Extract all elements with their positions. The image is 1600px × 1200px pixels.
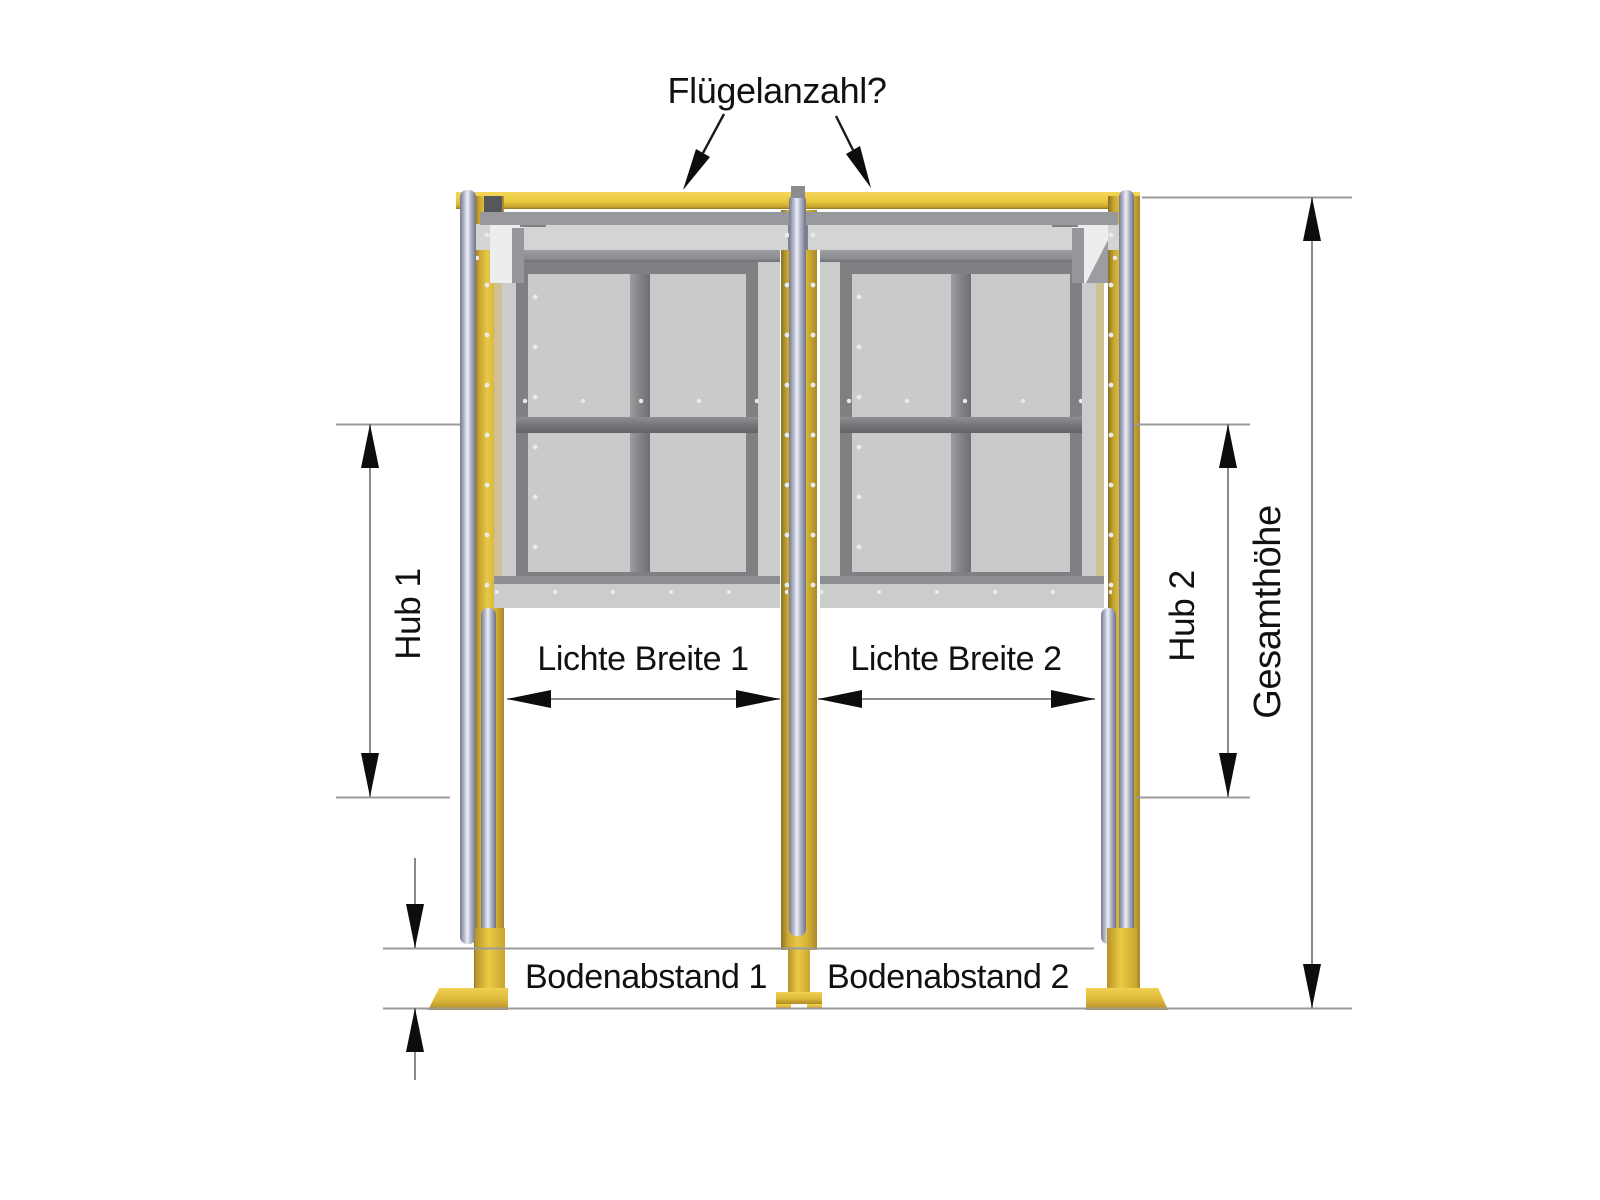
dimension-layer xyxy=(0,0,1600,1200)
total-height-arrow-down xyxy=(1303,964,1321,1008)
clear-width2-arrow-left xyxy=(818,690,862,708)
hub1-arrow-down xyxy=(361,753,379,797)
hub1-arrow-up xyxy=(361,424,379,468)
clear-width1-arrow-left xyxy=(507,690,551,708)
clear-width2-arrow-right xyxy=(1051,690,1095,708)
title-leader-left-arrow xyxy=(683,149,710,190)
floor-clearance2-label: Bodenabstand 2 xyxy=(808,958,1088,996)
total-height-arrow-up xyxy=(1303,197,1321,241)
floor-clearance-arrow-down xyxy=(406,904,424,948)
title-flap-count: Flügelanzahl? xyxy=(597,70,957,112)
title-leader-left-line xyxy=(703,114,724,153)
title-leader-right-line xyxy=(836,116,853,150)
hub2-arrow-down xyxy=(1219,753,1237,797)
clear-width2-label: Lichte Breite 2 xyxy=(811,640,1101,678)
title-leader-right-arrow xyxy=(846,146,871,188)
floor-clearance-arrow-up xyxy=(406,1008,424,1052)
clear-width1-arrow-right xyxy=(736,690,780,708)
safety-gate-dimension-diagram: Flügelanzahl? Hub 1 Hub 2 Gesamthöhe Lic… xyxy=(0,0,1600,1200)
hub2-label: Hub 2 xyxy=(1163,531,1203,701)
floor-clearance1-label: Bodenabstand 1 xyxy=(506,958,786,996)
total-height-label: Gesamthöhe xyxy=(1245,462,1291,762)
clear-width1-label: Lichte Breite 1 xyxy=(498,640,788,678)
hub2-arrow-up xyxy=(1219,424,1237,468)
hub1-label: Hub 1 xyxy=(389,529,429,699)
